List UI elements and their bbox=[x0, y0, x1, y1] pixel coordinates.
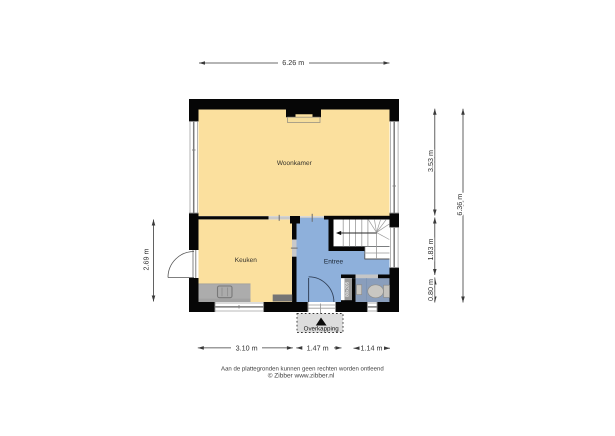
svg-text:3.53 m: 3.53 m bbox=[426, 150, 435, 172]
svg-text:1.83 m: 1.83 m bbox=[426, 239, 435, 261]
svg-text:Entree: Entree bbox=[324, 259, 344, 266]
svg-text:3.10 m: 3.10 m bbox=[236, 344, 258, 353]
svg-text:6.36 m: 6.36 m bbox=[455, 194, 464, 216]
svg-text:© Zibber www.zibber.nl: © Zibber www.zibber.nl bbox=[268, 372, 335, 379]
svg-text:80x205: 80x205 bbox=[345, 281, 350, 297]
svg-text:2.69 m: 2.69 m bbox=[141, 249, 150, 271]
svg-text:Keuken: Keuken bbox=[235, 257, 257, 264]
svg-text:Overkapping: Overkapping bbox=[304, 326, 340, 333]
svg-text:0.80 m: 0.80 m bbox=[426, 279, 435, 301]
svg-text:Aan de plattegronden kunnen ge: Aan de plattegronden kunnen geen rechten… bbox=[221, 365, 384, 372]
svg-text:1.47 m: 1.47 m bbox=[307, 344, 329, 353]
svg-text:Woonkamer: Woonkamer bbox=[277, 160, 313, 167]
svg-text:6.26 m: 6.26 m bbox=[282, 58, 304, 67]
svg-text:1.14 m: 1.14 m bbox=[361, 344, 383, 353]
